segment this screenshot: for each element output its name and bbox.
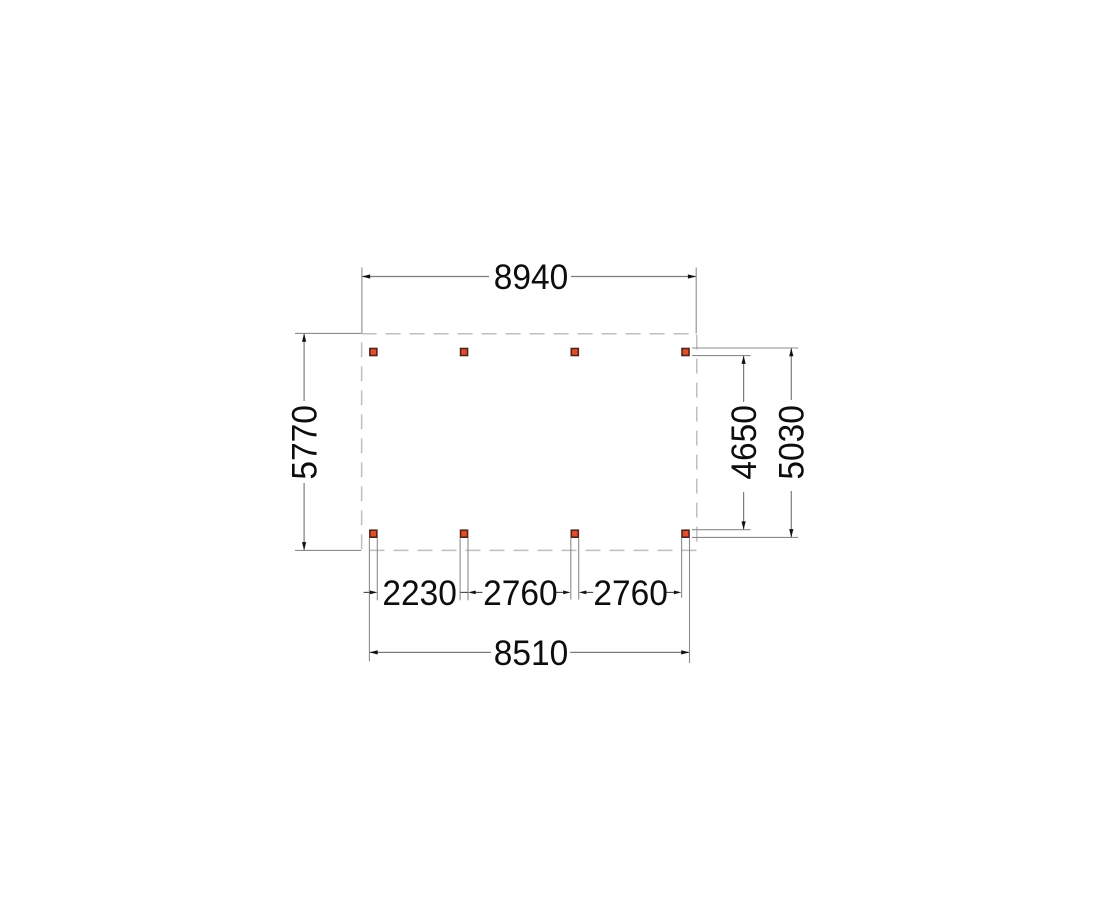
svg-text:8940: 8940 [494, 257, 569, 297]
svg-text:2230: 2230 [382, 573, 457, 613]
svg-text:8510: 8510 [494, 633, 569, 673]
svg-text:2760: 2760 [593, 573, 668, 613]
svg-text:2760: 2760 [483, 573, 558, 613]
svg-text:4650: 4650 [724, 405, 764, 480]
svg-text:5770: 5770 [285, 405, 325, 480]
svg-text:5030: 5030 [772, 405, 812, 480]
